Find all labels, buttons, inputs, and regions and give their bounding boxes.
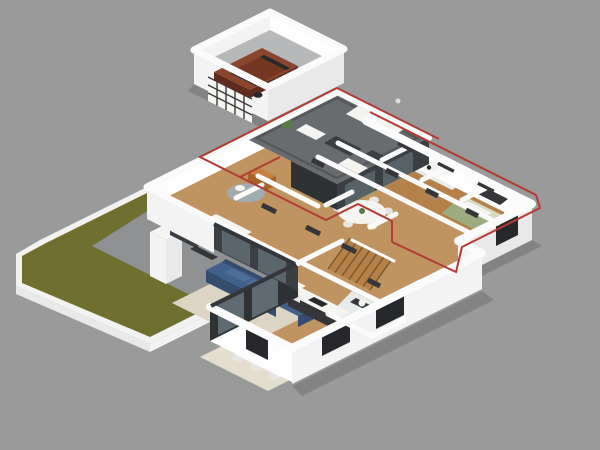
floor-lamp [396,99,401,104]
side-table [235,185,245,191]
floor-plan-render [0,0,600,450]
car-wheel [254,92,263,98]
sink [359,300,366,307]
table-plant [359,208,365,214]
floor-plan-canvas [0,0,600,450]
washer-door [427,165,431,169]
